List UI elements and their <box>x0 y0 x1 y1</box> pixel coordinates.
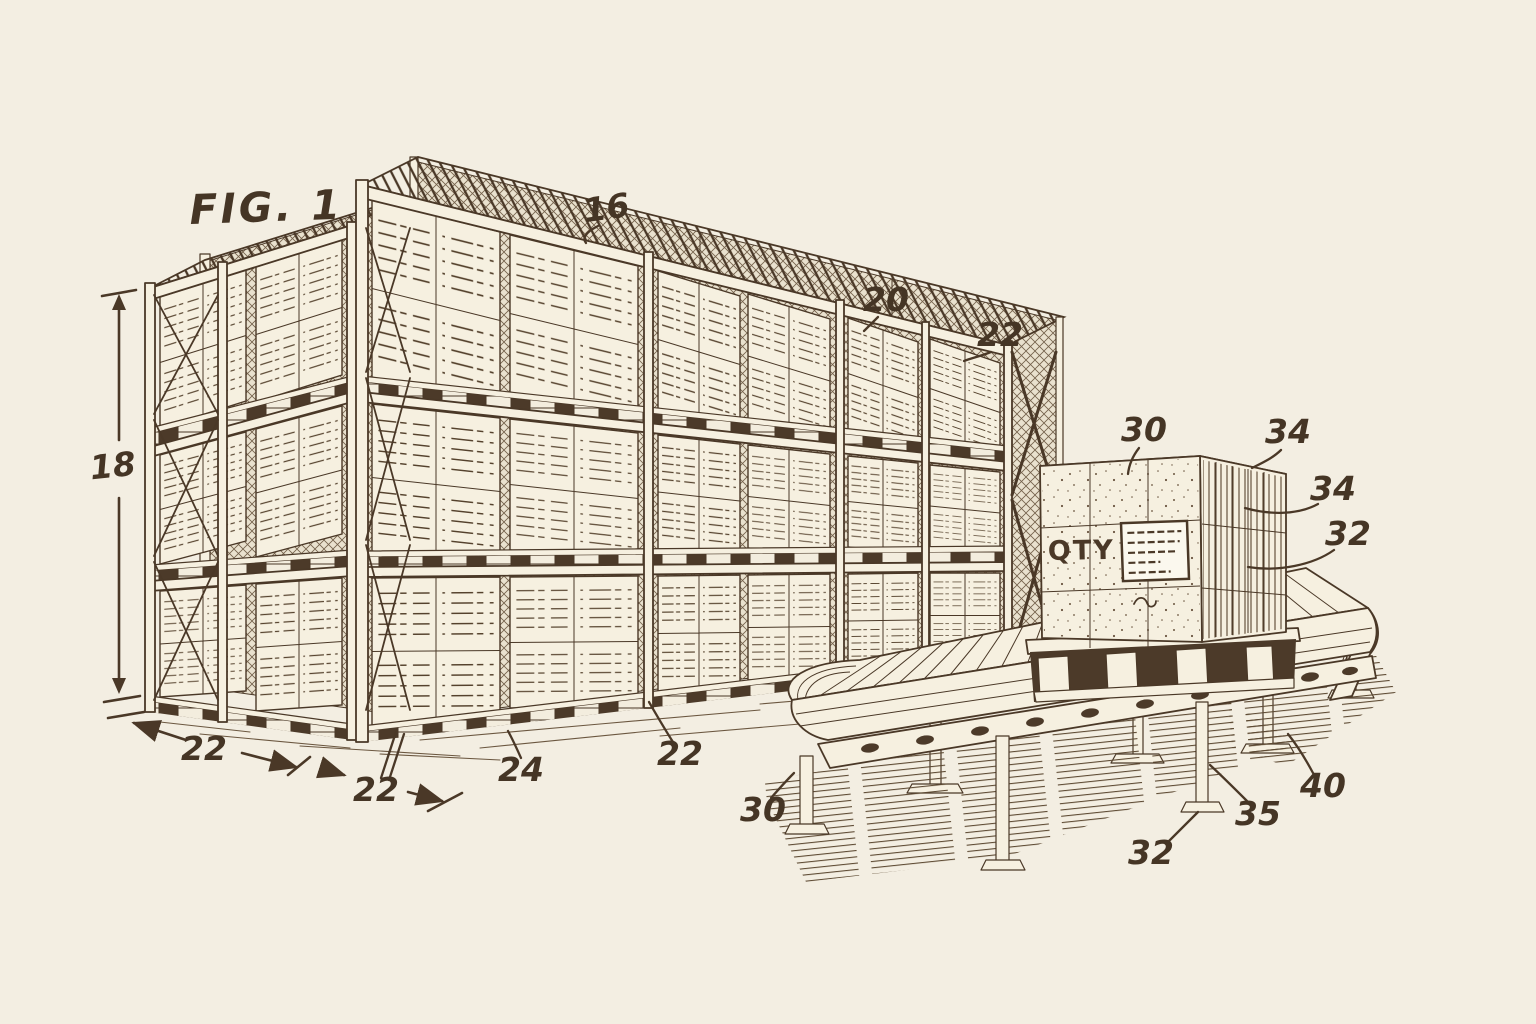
ref-numeral-34-11: 34 <box>1310 469 1356 508</box>
ref-numeral-32-12: 32 <box>1325 514 1371 553</box>
ref-numeral-22-2: 22 <box>977 315 1023 354</box>
ref-numeral-34-10: 34 <box>1265 412 1311 451</box>
qty-marking: QTY <box>1048 535 1115 567</box>
qty-box-shipping-label <box>1121 521 1189 581</box>
patent-figure-drawing: QTY <box>0 0 1536 1024</box>
patent-figure-page: QTY <box>0 0 1536 1024</box>
ref-numeral-30-8: 30 <box>740 790 786 829</box>
ref-numeral-22-5: 22 <box>353 770 399 809</box>
ref-numeral-20-1: 20 <box>863 280 909 319</box>
ref-numeral-30-9: 30 <box>1121 410 1167 449</box>
figure-label: FIG. 1 <box>189 181 344 234</box>
ref-numeral-22-7: 22 <box>657 734 703 773</box>
ref-numeral-40-13: 40 <box>1299 766 1346 805</box>
qty-box-unit: QTY <box>1026 456 1300 702</box>
ref-numeral-32-15: 32 <box>1128 833 1174 872</box>
ref-numeral-22-4: 22 <box>181 729 227 768</box>
ref-numeral-24-6: 24 <box>498 750 544 789</box>
ref-numeral-35-14: 35 <box>1235 794 1281 833</box>
ref-numeral-18-3: 18 <box>88 444 138 488</box>
ref-numeral-16-0: 16 <box>581 185 632 230</box>
